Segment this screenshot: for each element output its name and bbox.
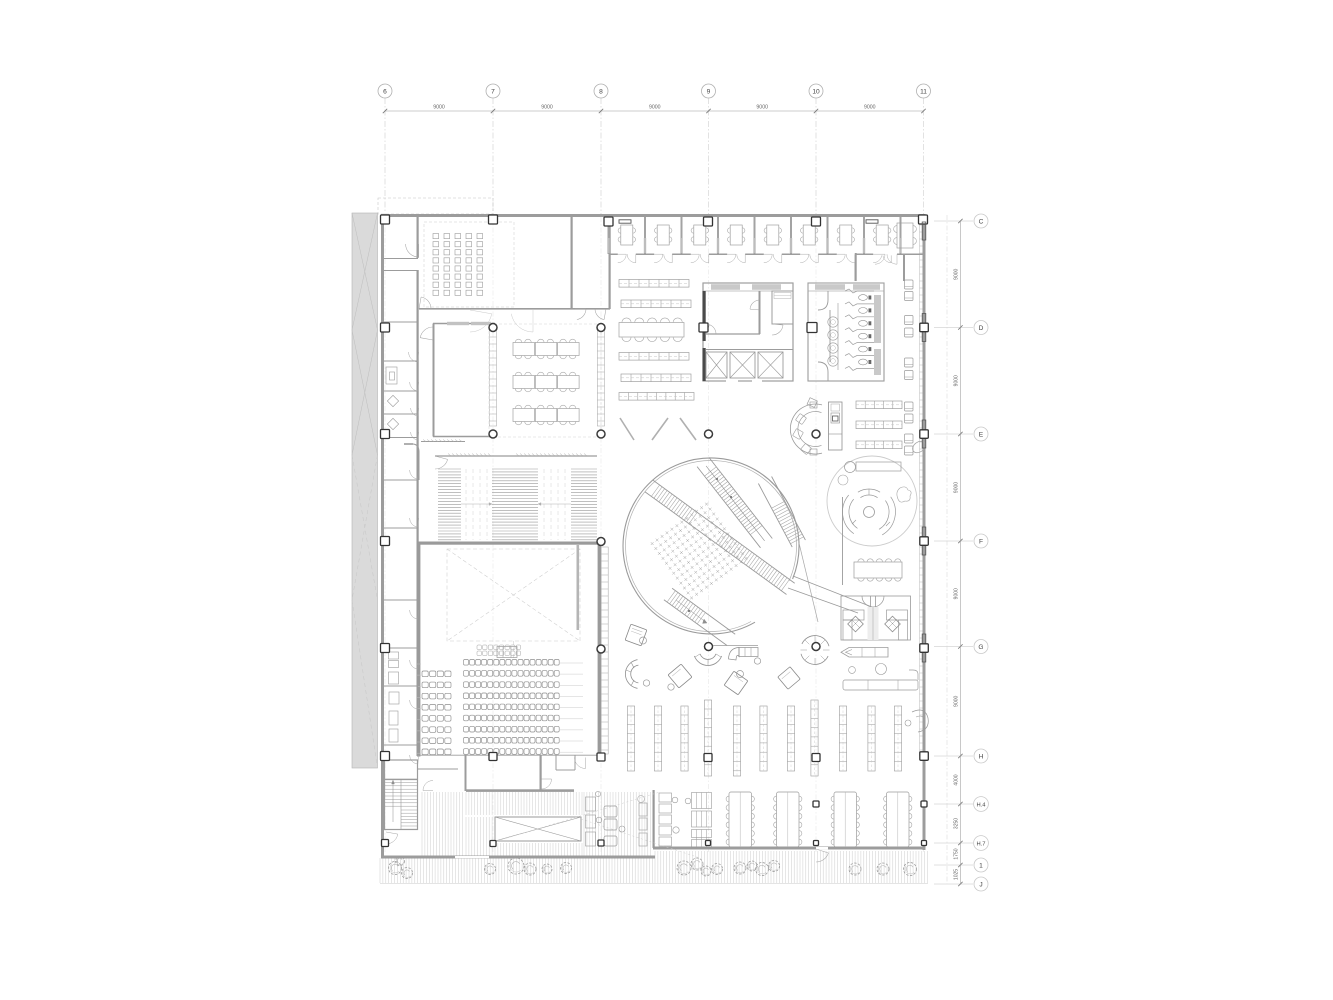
svg-text:10: 10	[812, 88, 820, 95]
svg-text:9000: 9000	[953, 695, 959, 706]
svg-text:J: J	[979, 881, 982, 888]
svg-text:G: G	[978, 644, 983, 651]
svg-text:9000: 9000	[541, 105, 553, 111]
svg-text:9000: 9000	[954, 375, 960, 386]
svg-text:C: C	[979, 218, 984, 225]
svg-text:6: 6	[383, 88, 387, 95]
svg-text:F: F	[979, 538, 983, 545]
svg-text:9000: 9000	[433, 105, 445, 111]
svg-text:9: 9	[707, 88, 711, 95]
svg-text:11: 11	[920, 88, 927, 95]
svg-text:1: 1	[979, 862, 983, 869]
svg-text:9000: 9000	[954, 482, 960, 493]
svg-text:9000: 9000	[756, 105, 768, 111]
svg-text:1025: 1025	[954, 869, 960, 880]
svg-text:7: 7	[491, 88, 495, 95]
svg-text:1750: 1750	[954, 848, 960, 859]
svg-text:H: H	[979, 753, 984, 760]
svg-text:H.7: H.7	[976, 841, 985, 847]
svg-text:9000: 9000	[649, 105, 661, 111]
svg-text:9000: 9000	[954, 588, 960, 599]
svg-text:E: E	[979, 431, 984, 438]
svg-text:3250: 3250	[954, 818, 960, 829]
svg-text:4000: 4000	[954, 774, 960, 785]
svg-text:9000: 9000	[953, 268, 959, 279]
svg-text:D: D	[979, 325, 984, 332]
svg-text:8: 8	[599, 88, 603, 95]
svg-text:H.4: H.4	[976, 802, 986, 808]
svg-text:9000: 9000	[864, 105, 876, 111]
